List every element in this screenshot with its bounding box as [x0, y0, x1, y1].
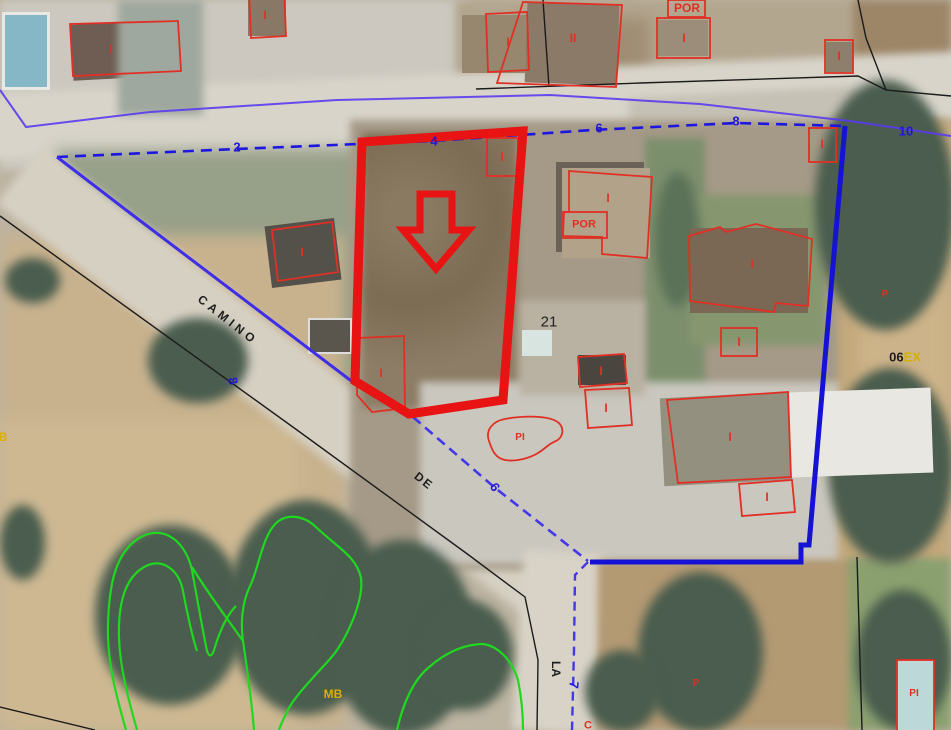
street-name: LA	[550, 661, 562, 677]
porch-label: POR	[674, 2, 700, 14]
building-floors-label: I	[300, 246, 303, 258]
land-use-label: MB	[324, 688, 343, 700]
land-use-label: P	[693, 679, 700, 689]
cadastral-map-viewport: I I I II POR I I I I I I I POR I I I I I…	[0, 0, 951, 730]
street-label-partial: C	[584, 721, 592, 730]
street-number: 7	[567, 681, 581, 689]
street-number: 4	[430, 135, 437, 148]
street-number: 6	[595, 122, 602, 135]
building-floors-label: II	[570, 32, 577, 44]
pool-label: PI	[515, 433, 524, 443]
building-floors-label: I	[506, 36, 509, 48]
land-use-label: MB	[0, 431, 7, 443]
street-number: 2	[233, 141, 240, 154]
black-boundary-lines	[0, 0, 951, 730]
building-floors-label: I	[379, 367, 382, 379]
building-floors-label: I	[737, 336, 740, 348]
selected-parcel-arrow-icon	[403, 194, 469, 269]
building-floors-label: I	[820, 138, 823, 150]
building-floors-label: I	[765, 491, 768, 503]
building-floors-label: I	[500, 151, 503, 163]
pool-label: PI	[909, 689, 918, 699]
building-floors-label: I	[599, 365, 602, 377]
sector-code-yellow: EX	[904, 350, 921, 365]
building-floors-label: I	[750, 258, 753, 270]
porch-label: POR	[572, 220, 596, 231]
building-floors-label: I	[604, 402, 607, 414]
building-floors-label: I	[263, 9, 266, 21]
street-number: 8	[732, 115, 739, 128]
building-floors-label: I	[109, 43, 112, 55]
building-floors-label: I	[728, 431, 731, 443]
parcel-number: 21	[541, 315, 558, 330]
sector-code: 06EX	[889, 351, 921, 364]
building-floors-label: I	[606, 192, 609, 204]
land-use-label: P	[882, 290, 889, 300]
building-floors-label: I	[837, 50, 840, 62]
building-floors-label: I	[682, 32, 685, 44]
sector-code-black: 06	[889, 350, 903, 365]
street-number: 10	[899, 125, 913, 138]
